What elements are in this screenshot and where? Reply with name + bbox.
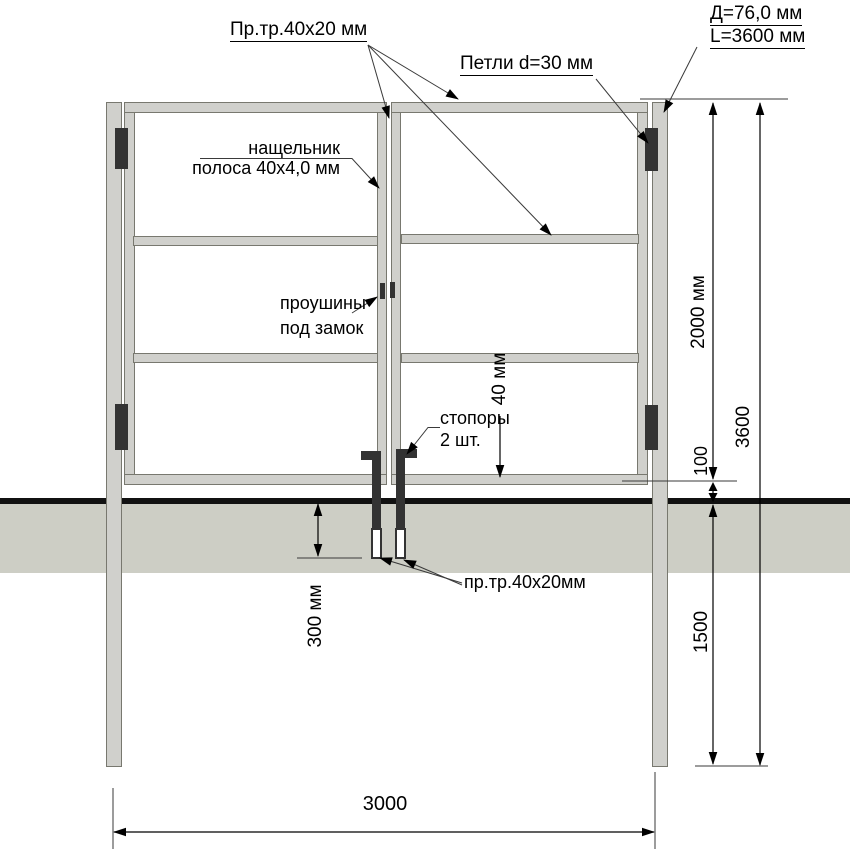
dimension-lines bbox=[114, 103, 760, 832]
label-cover-strip-line2: полоса 40х4,0 мм bbox=[190, 158, 340, 178]
label-cover-strip: нащельник полоса 40х4,0 мм bbox=[190, 138, 340, 178]
label-lock-lugs-line1: проушины bbox=[280, 291, 358, 316]
label-post-length: L=3600 мм bbox=[710, 27, 805, 49]
label-lock-lugs-line2: под замок bbox=[280, 316, 358, 341]
leader-stoppers bbox=[407, 428, 440, 455]
callout-leaders bbox=[200, 45, 697, 585]
dim-text-1500: 1500 bbox=[692, 611, 712, 653]
dimension-overlay bbox=[0, 0, 850, 852]
leader-hinges bbox=[596, 79, 648, 143]
dim-text-40: 40 мм bbox=[490, 353, 510, 406]
dim-text-300: 300 мм bbox=[306, 584, 326, 647]
label-stoppers-line2: 2 шт. bbox=[440, 429, 510, 451]
label-post-diameter: Д=76,0 мм bbox=[710, 4, 802, 26]
label-stoppers-line1: стопоры bbox=[440, 407, 510, 429]
dim-100-arrow-down bbox=[709, 493, 718, 502]
extension-lines bbox=[113, 99, 788, 849]
label-lock-lugs: проушины под замок bbox=[280, 291, 358, 341]
dim-text-100: 100 bbox=[691, 446, 711, 476]
dim-text-3000: 3000 bbox=[330, 794, 440, 814]
gate-drawing-canvas: Пр.тр.40х20 мм Петли d=30 мм Д=76,0 мм L… bbox=[0, 0, 850, 852]
label-profile-tube: Пр.тр.40х20 мм bbox=[230, 20, 367, 42]
dim-text-2000: 2000 мм bbox=[689, 275, 709, 349]
dim-100-arrow-up bbox=[709, 482, 718, 491]
label-profile-tube-bottom: пр.тр.40х20мм bbox=[464, 572, 586, 592]
label-cover-strip-line1: нащельник bbox=[190, 138, 340, 158]
dim-text-3600: 3600 bbox=[734, 406, 754, 448]
label-stoppers: стопоры 2 шт. bbox=[440, 407, 510, 451]
label-hinges: Петли d=30 мм bbox=[460, 54, 593, 76]
leader-profile-tube-bottom-2 bbox=[404, 560, 462, 585]
leader-post-size bbox=[664, 47, 697, 112]
